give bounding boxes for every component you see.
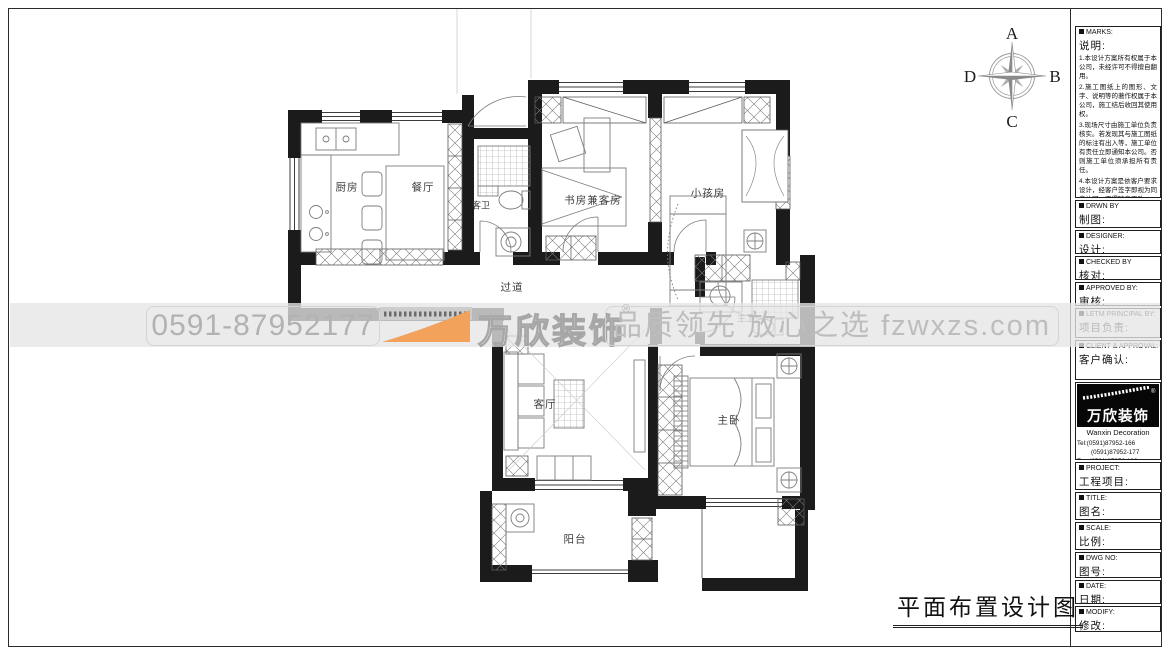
room-label-kitchen: 厨房 [336, 180, 359, 195]
room-label-guest-bath: 客卫 [472, 199, 490, 212]
compass-label-east: B [1049, 67, 1060, 86]
marks-title: 说明: [1079, 38, 1157, 53]
room-label-study: 书房兼客房 [564, 193, 622, 208]
compass-main-points [978, 42, 1046, 110]
section-marker-icon [1079, 203, 1084, 208]
room-label-kids: 小孩房 [691, 186, 726, 201]
section-marker-icon [1079, 29, 1084, 34]
section-marker-icon [1079, 259, 1084, 264]
compass-rose: A B C D [963, 26, 1063, 130]
section-marker-icon [1079, 311, 1084, 316]
section-marker-icon [1079, 285, 1084, 290]
marks-note-2: 2.施工图纸上的图形、文字、说明等的著作权属于本公司，施工结后收回其使用权。 [1079, 84, 1157, 120]
scale-section: SCALE: 比例: [1075, 522, 1161, 550]
section-marker-icon [1079, 465, 1084, 470]
room-label-living: 客厅 [534, 397, 557, 412]
approved-by-section: APPROVED BY: 审核: [1075, 282, 1161, 306]
logo-swoosh-icon: ® [1080, 386, 1156, 400]
room-label-master: 主卧 [718, 413, 741, 428]
client-approval-section: CLIENT & APPROVAL: 客户确认: [1075, 340, 1161, 380]
room-label-balcony: 阳台 [564, 532, 587, 547]
company-logo-text: 万欣装饰 [1079, 405, 1157, 426]
company-contact: Tel:(0591)87952-166 (0591)87952-177 Fax:… [1077, 439, 1159, 460]
guide-lines [457, 9, 531, 94]
section-marker-icon [1079, 525, 1084, 530]
svg-text:®: ® [1151, 388, 1156, 395]
walls [288, 80, 815, 591]
compass-label-south: C [1006, 112, 1017, 130]
section-marker-icon [1079, 233, 1084, 238]
section-marker-icon [1079, 495, 1084, 500]
company-section: ® 万欣装饰 Wanxin Decoration Tel:(0591)87952… [1075, 382, 1161, 460]
dwg-no-section: DWG NO: 图号: [1075, 552, 1161, 578]
drawing-bottom-title: 平面布置设计图 [893, 588, 1083, 628]
company-logo-sub: Wanxin Decoration [1077, 428, 1159, 437]
designer-section: DESIGNER: 设计: [1075, 230, 1161, 254]
marks-note-3: 3.现场尺寸由施工单位负责核实。若发现其与施工图纸的标注有出入等，施工单位有责任… [1079, 122, 1157, 176]
title-block: MARKS: 说明: 1.本设计方案所有权属于本公司，未经许可不得擅自翻用。 2… [1075, 26, 1161, 634]
compass-label-north: A [1006, 26, 1019, 43]
drawing-sheet: 厨房 餐厅 客卫 书房兼客房 小孩房 过道 主卫 客厅 主卧 阳台 0591-8… [0, 0, 1171, 654]
room-label-corridor: 过道 [501, 280, 524, 295]
drawn-by-section: DRWN BY 制图: [1075, 200, 1161, 228]
marks-note-1: 1.本设计方案所有权属于本公司，未经许可不得擅自翻用。 [1079, 55, 1157, 82]
drawing-title-section: TITLE: 图名: [1075, 492, 1161, 520]
date-section: DATE: 日期: [1075, 580, 1161, 604]
section-marker-icon [1079, 555, 1084, 560]
marks-note-4: 4.本设计方案是依客户要求设计，经客户签字即视为同意认可，不得随意更改。 [1079, 178, 1157, 198]
project-section: PROJECT: 工程项目: [1075, 462, 1161, 490]
section-marker-icon [1079, 343, 1084, 348]
checked-by-section: CHECKED BY 核对: [1075, 256, 1161, 280]
room-label-master-bath: 主卫 [737, 312, 755, 325]
modify-section: MODIFY: 修改: [1075, 606, 1161, 632]
room-label-dining: 餐厅 [412, 180, 435, 195]
compass-label-west: D [964, 67, 976, 86]
company-logo: ® 万欣装饰 [1077, 384, 1159, 427]
principal-section: LETM PRINCIPAL BY: 项目负责: [1075, 308, 1161, 338]
marks-section: MARKS: 说明: 1.本设计方案所有权属于本公司，未经许可不得擅自翻用。 2… [1075, 26, 1161, 198]
